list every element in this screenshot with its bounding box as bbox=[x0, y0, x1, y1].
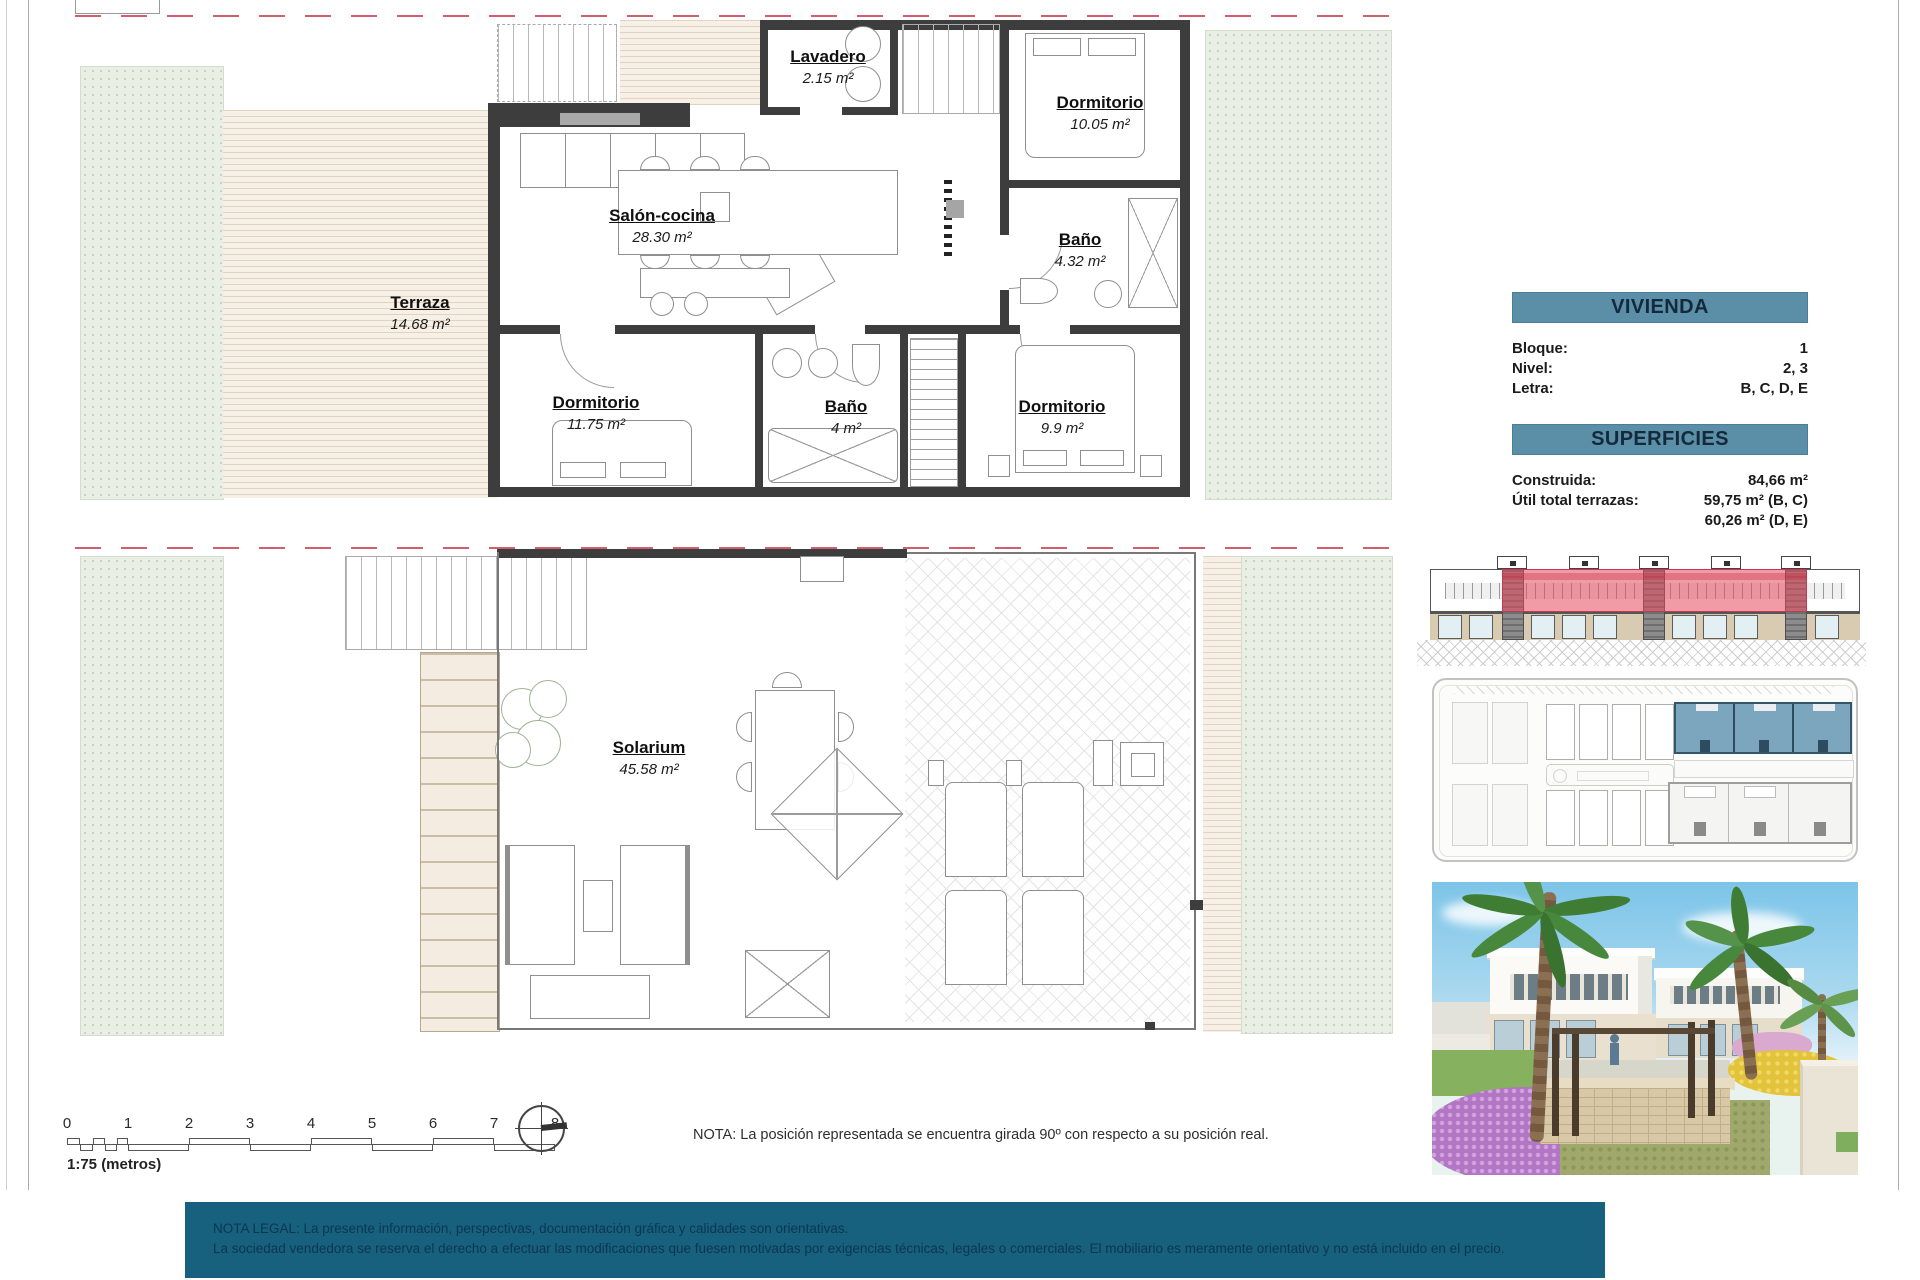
render-corner-lawn bbox=[1836, 1132, 1858, 1152]
garden-band-right-lower bbox=[1241, 556, 1393, 1034]
pillow-icon bbox=[560, 462, 606, 478]
door-swing bbox=[560, 334, 614, 388]
coffee-table-icon bbox=[583, 880, 613, 932]
scale-segment bbox=[128, 1144, 189, 1151]
room-label-bano-1: Baño 4.32 m² bbox=[1055, 230, 1106, 270]
exterior-stairs-lower bbox=[345, 556, 587, 650]
scale-segment bbox=[117, 1138, 128, 1145]
stool-icon bbox=[690, 255, 720, 269]
wall bbox=[1009, 180, 1180, 188]
side-table-icon bbox=[1006, 760, 1022, 786]
room-name: Dormitorio bbox=[1057, 93, 1144, 113]
info-label: Letra: bbox=[1512, 380, 1554, 397]
room-area: 11.75 m² bbox=[553, 416, 640, 433]
room-label-dormitorio-1: Dormitorio 10.05 m² bbox=[1057, 93, 1144, 133]
room-area: 10.05 m² bbox=[1057, 116, 1144, 133]
outdoor-sink-icon bbox=[800, 556, 844, 582]
chair-icon bbox=[838, 712, 854, 742]
info-value: 60,26 m² (D, E) bbox=[1705, 512, 1808, 529]
info-row-construida: Construida: 84,66 m² bbox=[1512, 472, 1808, 489]
room-label-lavadero: Lavadero 2.15 m² bbox=[790, 47, 866, 87]
burner-icon bbox=[650, 292, 674, 316]
chair-icon bbox=[772, 672, 802, 688]
room-name: Solarium bbox=[613, 738, 686, 758]
room-label-bano-2: Baño 4 m² bbox=[825, 397, 868, 437]
exterior-stairs-upper bbox=[497, 24, 617, 102]
elevation-window bbox=[1438, 615, 1462, 639]
blind-dots-icon bbox=[944, 180, 952, 260]
washbasin-icon bbox=[808, 348, 838, 378]
render-pergola-post bbox=[1572, 1028, 1579, 1136]
nightstand-icon bbox=[988, 455, 1010, 477]
site-unit bbox=[1546, 704, 1575, 760]
roof-parapet bbox=[1569, 556, 1599, 569]
render-glass-door bbox=[1566, 1020, 1596, 1058]
room-label-terraza: Terraza 14.68 m² bbox=[390, 293, 449, 333]
info-row-letra: Letra: B, C, D, E bbox=[1512, 380, 1808, 397]
render-pergola-post bbox=[1688, 1022, 1695, 1118]
scale-segment bbox=[80, 1144, 93, 1151]
wall bbox=[958, 334, 966, 487]
frame-line-left bbox=[28, 0, 29, 1190]
stairs-lower-core bbox=[910, 338, 958, 487]
info-label: Bloque: bbox=[1512, 340, 1568, 357]
entry-decking bbox=[620, 20, 763, 105]
wall-thin bbox=[497, 552, 499, 1030]
bench-icon bbox=[530, 975, 650, 1019]
site-unit bbox=[1492, 784, 1528, 846]
scale-tick: 1 bbox=[124, 1115, 132, 1132]
room-area: 4 m² bbox=[825, 420, 868, 437]
site-unit bbox=[1492, 702, 1528, 764]
shower-icon bbox=[1128, 198, 1178, 308]
room-area: 9.9 m² bbox=[1019, 420, 1106, 437]
site-unit bbox=[1579, 790, 1608, 846]
info-row-bloque: Bloque: 1 bbox=[1512, 340, 1808, 357]
site-unit bbox=[1452, 784, 1488, 846]
room-area: 4.32 m² bbox=[1055, 253, 1106, 270]
wall bbox=[1180, 20, 1190, 497]
wall bbox=[760, 20, 768, 115]
washbasin-icon bbox=[772, 348, 802, 378]
roof-parapet bbox=[1497, 556, 1527, 569]
site-unit bbox=[1612, 790, 1641, 846]
pillow-icon bbox=[620, 462, 666, 478]
render-person-head bbox=[1610, 1034, 1619, 1043]
scale-segment bbox=[67, 1138, 80, 1145]
roof-parapet bbox=[1711, 556, 1741, 569]
wall bbox=[490, 487, 1190, 497]
plot-boundary-dashed-upper bbox=[75, 15, 1390, 17]
side-table-icon bbox=[928, 760, 944, 786]
site-pool bbox=[1546, 764, 1674, 786]
render-upper-windows-2 bbox=[1670, 986, 1780, 1004]
room-label-dormitorio-2: Dormitorio 11.75 m² bbox=[553, 393, 640, 433]
legal-line-2: La sociedad vendedora se reserva el dere… bbox=[213, 1239, 1605, 1259]
render-pergola-post bbox=[1708, 1020, 1715, 1116]
wall bbox=[488, 103, 500, 497]
roof-parapet bbox=[1781, 556, 1811, 569]
pillow-icon bbox=[1080, 450, 1124, 466]
sofa-icon bbox=[620, 845, 690, 965]
chair-icon bbox=[736, 762, 752, 792]
pillow-icon bbox=[1088, 38, 1136, 56]
column-icon bbox=[946, 200, 964, 218]
highlight-band bbox=[1502, 573, 1807, 580]
room-name: Baño bbox=[825, 397, 868, 417]
scale-segment bbox=[189, 1138, 250, 1145]
legal-footer: NOTA LEGAL: La presente información, per… bbox=[185, 1202, 1605, 1278]
info-row-util-2: 60,26 m² (D, E) bbox=[1512, 512, 1808, 529]
elevation-window bbox=[1734, 615, 1758, 639]
room-area: 2.15 m² bbox=[790, 70, 866, 87]
scale-segment bbox=[433, 1138, 494, 1145]
frame-line-left-outer bbox=[6, 0, 7, 1190]
render-upper-windows bbox=[1510, 974, 1628, 1000]
door-gap bbox=[560, 325, 615, 334]
elevation-window bbox=[1562, 615, 1586, 639]
info-value: 59,75 m² (B, C) bbox=[1704, 492, 1808, 509]
site-unit bbox=[1579, 704, 1608, 760]
garden-band-left-upper bbox=[80, 66, 224, 500]
site-unit bbox=[1546, 790, 1575, 846]
scale-ratio-label: 1:75 (metros) bbox=[67, 1156, 161, 1173]
elevation-window bbox=[1815, 615, 1839, 639]
ground-hatch bbox=[1417, 640, 1866, 666]
info-row-util: Útil total terrazas: 59,75 m² (B, C) bbox=[1512, 492, 1808, 509]
scale-tick: 4 bbox=[307, 1115, 315, 1132]
garden-band-right-upper bbox=[1205, 30, 1392, 500]
door-gap bbox=[1000, 235, 1009, 290]
garden-band-left-lower bbox=[80, 556, 224, 1036]
site-unit bbox=[1452, 702, 1488, 764]
wall bbox=[497, 549, 907, 558]
side-table-icon bbox=[1093, 740, 1113, 786]
door-gap bbox=[1020, 325, 1070, 334]
render-stone-planter bbox=[1540, 1088, 1730, 1144]
stairs-upper-core bbox=[902, 24, 1000, 114]
north-compass-icon bbox=[518, 1105, 565, 1152]
deck-ladder bbox=[420, 652, 500, 1032]
sun-lounger-icon bbox=[945, 782, 1007, 877]
toilet-icon bbox=[1020, 278, 1058, 304]
burner-icon bbox=[684, 292, 708, 316]
scale-tick: 0 bbox=[63, 1115, 71, 1132]
room-area: 28.30 m² bbox=[609, 229, 715, 246]
sun-lounger-icon bbox=[1022, 890, 1084, 985]
render-pergola-post bbox=[1552, 1032, 1559, 1136]
site-plan-diagram bbox=[1432, 678, 1858, 862]
room-name: Dormitorio bbox=[553, 393, 640, 413]
plant-icon bbox=[495, 680, 575, 785]
info-value: 2, 3 bbox=[1783, 360, 1808, 377]
vivienda-panel-header: VIVIENDA bbox=[1512, 292, 1808, 323]
info-value: B, C, D, E bbox=[1740, 380, 1808, 397]
scale-segment bbox=[250, 1144, 311, 1151]
scale-tick: 2 bbox=[185, 1115, 193, 1132]
wall-thin bbox=[497, 1028, 1196, 1030]
room-name: Dormitorio bbox=[1019, 397, 1106, 417]
superficies-panel-header: SUPERFICIES bbox=[1512, 424, 1808, 455]
site-block-lower bbox=[1668, 782, 1852, 844]
render-pergola-beam bbox=[1552, 1028, 1715, 1034]
elevation-window bbox=[1703, 615, 1727, 639]
scale-segment bbox=[105, 1144, 117, 1151]
scale-tick: 5 bbox=[368, 1115, 376, 1132]
site-drive bbox=[1674, 760, 1854, 778]
tv-unit-icon bbox=[560, 113, 640, 125]
room-label-solarium: Solarium 45.58 m² bbox=[613, 738, 686, 778]
sofa-icon bbox=[505, 845, 575, 965]
scale-segment bbox=[93, 1138, 105, 1145]
room-label-salon: Salón-cocina 28.30 m² bbox=[609, 206, 715, 246]
site-hatch bbox=[1454, 686, 1834, 694]
room-area: 45.58 m² bbox=[613, 761, 686, 778]
pillow-icon bbox=[1023, 450, 1067, 466]
wall-thin bbox=[907, 552, 1196, 554]
room-name: Terraza bbox=[390, 293, 449, 313]
elevation-window bbox=[1672, 615, 1696, 639]
render-person-body bbox=[1610, 1043, 1619, 1065]
umbrella-table-icon bbox=[1120, 742, 1164, 786]
room-name: Salón-cocina bbox=[609, 206, 715, 226]
deck-band-right-lower bbox=[1203, 556, 1241, 1032]
info-row-nivel: Nivel: 2, 3 bbox=[1512, 360, 1808, 377]
door-gap bbox=[800, 107, 842, 115]
pillow-icon bbox=[1033, 38, 1081, 56]
terraza-decking bbox=[223, 110, 497, 498]
nightstand-icon bbox=[1140, 455, 1162, 477]
shower-tray-icon bbox=[745, 950, 830, 1018]
washbasin-icon bbox=[1094, 280, 1122, 308]
render-image bbox=[1432, 882, 1858, 1175]
elevation-diagram bbox=[1417, 552, 1866, 670]
wall bbox=[755, 334, 763, 487]
sun-lounger-icon bbox=[1022, 782, 1084, 877]
roof-parapet bbox=[1639, 556, 1669, 569]
site-unit bbox=[1645, 704, 1674, 760]
room-area: 14.68 m² bbox=[390, 316, 449, 333]
frame-line-right bbox=[1898, 0, 1899, 1190]
scale-segment bbox=[311, 1138, 372, 1145]
info-label: Nivel: bbox=[1512, 360, 1553, 377]
info-label: Construida: bbox=[1512, 472, 1596, 489]
site-highlighted-block bbox=[1674, 702, 1852, 754]
room-name: Lavadero bbox=[790, 47, 866, 67]
scale-tick: 7 bbox=[490, 1115, 498, 1132]
wall bbox=[900, 334, 908, 487]
info-label: Útil total terrazas: bbox=[1512, 492, 1639, 509]
scale-tick: 3 bbox=[246, 1115, 254, 1132]
render-foreground-wall bbox=[1800, 1060, 1858, 1175]
stool-icon bbox=[740, 156, 770, 170]
elevation-window bbox=[1531, 615, 1555, 639]
wall bbox=[890, 20, 898, 115]
wall-thin bbox=[1194, 552, 1196, 1030]
info-value: 84,66 m² bbox=[1748, 472, 1808, 489]
info-value: 1 bbox=[1800, 340, 1808, 357]
door-gap bbox=[815, 325, 865, 334]
elevation-window bbox=[1469, 615, 1493, 639]
legal-line-1: NOTA LEGAL: La presente información, per… bbox=[213, 1219, 1605, 1239]
site-unit bbox=[1612, 704, 1641, 760]
frame-title-box bbox=[75, 0, 160, 14]
room-label-dormitorio-3: Dormitorio 9.9 m² bbox=[1019, 397, 1106, 437]
room-name: Baño bbox=[1055, 230, 1106, 250]
toilet-icon bbox=[852, 344, 880, 386]
elevation-window bbox=[1593, 615, 1617, 639]
scale-segment bbox=[372, 1144, 433, 1151]
sun-lounger-icon bbox=[945, 890, 1007, 985]
floor-plan-sheet: Terraza 14.68 m² Salón-cocina 28.30 m² L… bbox=[0, 0, 1920, 1280]
stool-icon bbox=[640, 255, 670, 269]
chair-icon bbox=[736, 712, 752, 742]
scale-tick: 6 bbox=[429, 1115, 437, 1132]
rotation-note: NOTA: La posición representada se encuen… bbox=[693, 1127, 1269, 1143]
